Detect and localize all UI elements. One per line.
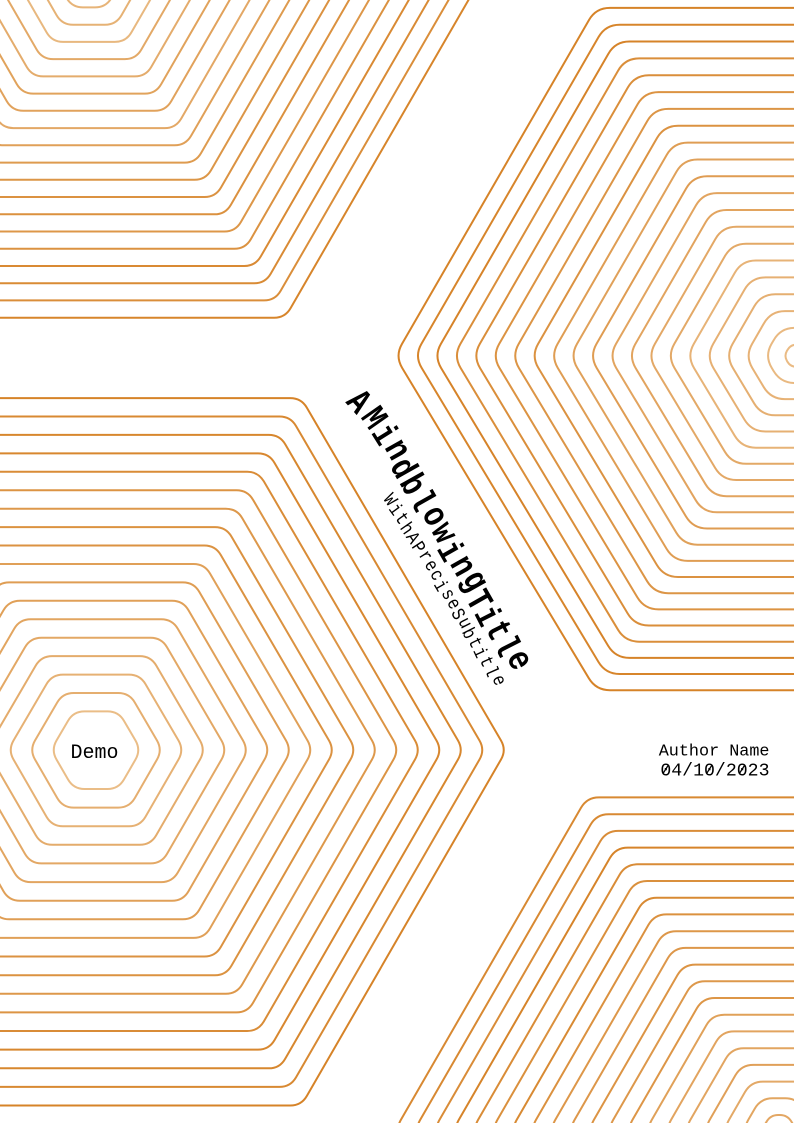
svg-text:Author Name: Author Name bbox=[659, 743, 770, 762]
svg-text:Demo: Demo bbox=[70, 742, 118, 765]
svg-text:04/10/2023: 04/10/2023 bbox=[660, 762, 769, 782]
